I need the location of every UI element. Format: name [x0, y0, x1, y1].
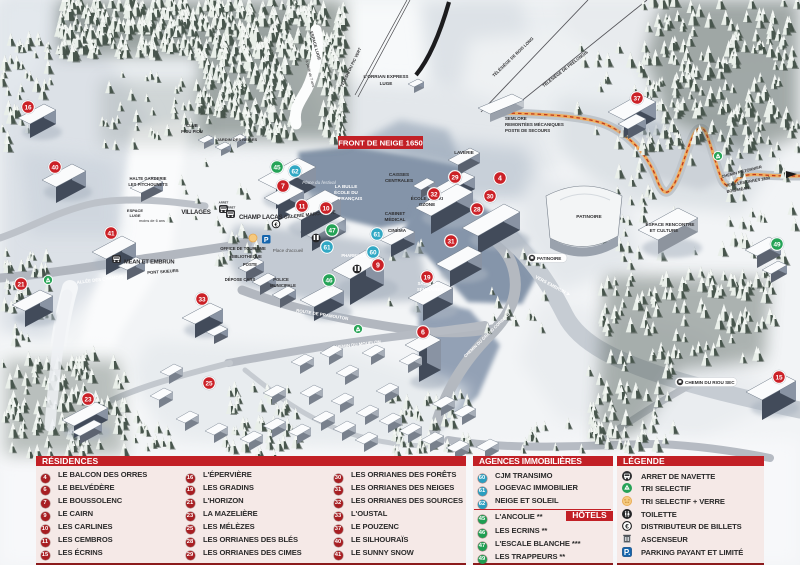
svg-text:CINÉMA: CINÉMA	[388, 226, 407, 233]
svg-text:LUGE: LUGE	[380, 81, 393, 86]
svg-text:40: 40	[51, 164, 59, 171]
svg-text:46: 46	[325, 277, 333, 284]
svg-text:16: 16	[24, 104, 32, 111]
svg-text:ARRET: ARRET	[226, 206, 236, 210]
svg-text:HALTE GARDERIE: HALTE GARDERIE	[130, 176, 167, 181]
svg-text:P.: P.	[624, 548, 630, 557]
svg-text:SKI FRANÇAIS: SKI FRANÇAIS	[330, 196, 363, 201]
svg-text:LUGE: LUGE	[129, 213, 140, 218]
svg-text:LES PITCHOUNETS: LES PITCHOUNETS	[128, 182, 168, 187]
svg-text:MÉDICAL: MÉDICAL	[385, 215, 406, 222]
svg-text:PATINOIRE: PATINOIRE	[537, 256, 561, 261]
svg-text:moins de 6 ans: moins de 6 ans	[139, 219, 165, 223]
svg-text:SÉMINAIRES: SÉMINAIRES	[417, 287, 443, 292]
svg-text:29: 29	[451, 174, 459, 181]
svg-text:19: 19	[423, 274, 431, 281]
svg-text:MUNICIPALE: MUNICIPALE	[270, 283, 296, 288]
svg-text:L'ORRIAN EXPRESS: L'ORRIAN EXPRESS	[364, 74, 409, 79]
svg-text:CENTRALES: CENTRALES	[385, 178, 413, 183]
svg-text:28: 28	[473, 206, 481, 213]
svg-text:33: 33	[198, 296, 206, 303]
svg-text:POSTE DE SECOURS: POSTE DE SECOURS	[505, 128, 550, 133]
svg-text:23: 23	[84, 396, 92, 403]
svg-text:PIOU PIOU: PIOU PIOU	[181, 129, 203, 134]
svg-text:61: 61	[373, 231, 381, 238]
svg-text:ARRET: ARRET	[219, 201, 229, 205]
svg-text:LAVERIE: LAVERIE	[454, 150, 474, 155]
svg-text:ESPACE RENCONTRE: ESPACE RENCONTRE	[646, 222, 695, 227]
svg-text:FRONT DE NEIGE 1650: FRONT DE NEIGE 1650	[338, 139, 423, 148]
svg-text:DÉPOSE CARS: DÉPOSE CARS	[225, 277, 256, 282]
svg-text:JARDIN DES NEIGES: JARDIN DES NEIGES	[217, 137, 258, 142]
svg-text:PATINOIRE: PATINOIRE	[576, 214, 602, 220]
svg-text:POSTE: POSTE	[243, 262, 257, 267]
svg-text:7: 7	[281, 183, 285, 190]
svg-text:10: 10	[322, 205, 330, 212]
svg-text:POLICE: POLICE	[273, 277, 289, 282]
svg-text:OZONE: OZONE	[419, 202, 435, 207]
svg-text:31: 31	[447, 238, 455, 245]
svg-text:62: 62	[291, 168, 299, 175]
svg-text:Place d'accueil: Place d'accueil	[273, 248, 304, 253]
svg-text:37: 37	[633, 95, 641, 102]
svg-text:30: 30	[486, 193, 494, 200]
svg-text:9: 9	[376, 262, 380, 269]
svg-text:CHEMIN DU RIOU SEC: CHEMIN DU RIOU SEC	[685, 380, 735, 385]
svg-text:32: 32	[430, 191, 438, 198]
svg-text:61: 61	[323, 244, 331, 251]
svg-text:15: 15	[775, 374, 783, 381]
svg-text:60: 60	[369, 249, 377, 256]
svg-text:SEMLORE: SEMLORE	[505, 116, 527, 121]
svg-text:11: 11	[299, 203, 306, 210]
svg-text:ÉCOLE DU: ÉCOLE DU	[334, 188, 358, 195]
svg-text:45: 45	[273, 164, 281, 171]
svg-text:OFFICE DE TOURISME: OFFICE DE TOURISME	[220, 246, 266, 251]
svg-text:REMONTÉES MÉCANIQUES: REMONTÉES MÉCANIQUES	[505, 122, 564, 127]
svg-text:6: 6	[421, 329, 425, 336]
svg-text:Place du festival: Place du festival	[302, 180, 336, 185]
svg-text:ET CULTURE: ET CULTURE	[650, 228, 679, 233]
svg-text:BIBLIOTHÈQUE: BIBLIOTHÈQUE	[230, 254, 262, 259]
svg-text:VILLAGES: VILLAGES	[181, 209, 210, 216]
svg-text:21: 21	[17, 281, 25, 288]
svg-text:MEAN ET EMBRUN: MEAN ET EMBRUN	[124, 260, 174, 266]
svg-text:47: 47	[328, 227, 336, 234]
svg-text:PHARMACIE: PHARMACIE	[341, 253, 367, 258]
svg-text:€: €	[625, 524, 629, 531]
svg-text:CLUB: CLUB	[186, 123, 198, 128]
svg-text:P: P	[264, 237, 269, 244]
svg-text:4: 4	[498, 175, 502, 182]
svg-text:CAISSES: CAISSES	[389, 172, 409, 177]
svg-text:LA BULLE: LA BULLE	[335, 184, 358, 189]
svg-text:25: 25	[205, 380, 213, 387]
svg-text:CABINET: CABINET	[385, 211, 406, 216]
svg-text:49: 49	[773, 241, 781, 248]
svg-text:41: 41	[107, 230, 115, 237]
